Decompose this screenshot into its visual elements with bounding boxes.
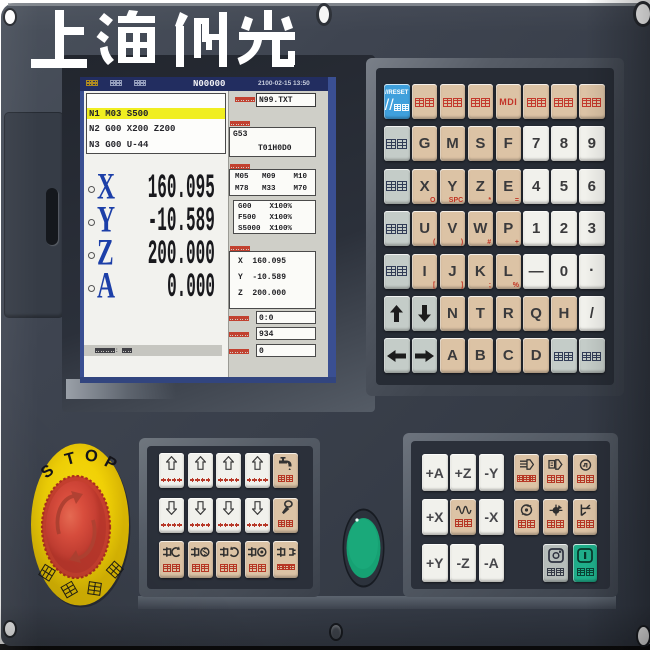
svg-text:O: O — [84, 446, 99, 465]
